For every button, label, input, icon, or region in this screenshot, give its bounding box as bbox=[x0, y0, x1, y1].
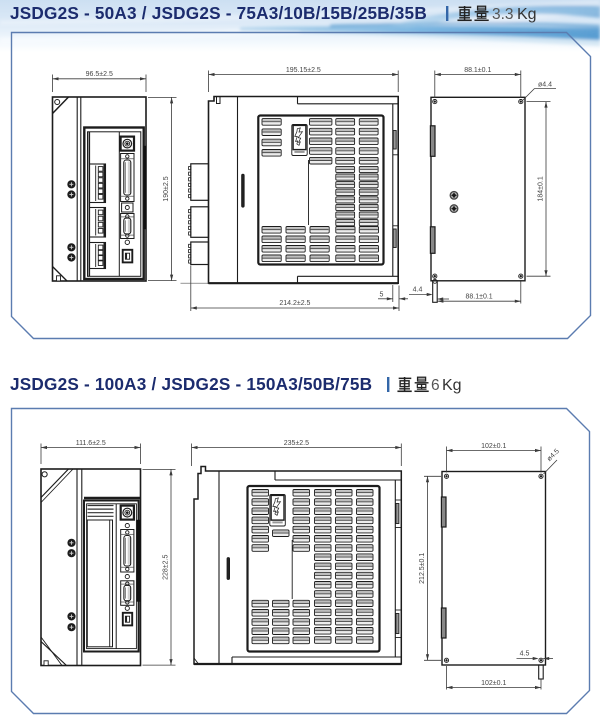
svg-text:235±2.5: 235±2.5 bbox=[284, 440, 309, 447]
svg-text:5: 5 bbox=[380, 292, 384, 299]
svg-text:184±0.1: 184±0.1 bbox=[538, 176, 545, 201]
svg-text:JSDG2S - 50A3 / JSDG2S - 75A3/: JSDG2S - 50A3 / JSDG2S - 75A3/10B/15B/25… bbox=[10, 3, 427, 23]
svg-text:228±2.5: 228±2.5 bbox=[163, 555, 170, 580]
svg-text:102±0.1: 102±0.1 bbox=[481, 443, 506, 450]
svg-text:4.4: 4.4 bbox=[413, 287, 423, 294]
svg-text:JSDG2S - 100A3 / JSDG2S - 150A: JSDG2S - 100A3 / JSDG2S - 150A3/50B/75B bbox=[10, 374, 372, 394]
svg-text:88.1±0.1: 88.1±0.1 bbox=[464, 67, 491, 74]
svg-text:3.3: 3.3 bbox=[492, 6, 514, 23]
svg-text:6: 6 bbox=[431, 377, 440, 394]
svg-text:ø4.4: ø4.4 bbox=[538, 82, 552, 89]
svg-text:212.5±0.1: 212.5±0.1 bbox=[419, 553, 426, 584]
svg-text:190±2.5: 190±2.5 bbox=[163, 176, 170, 201]
svg-text:102±0.1: 102±0.1 bbox=[481, 680, 506, 687]
svg-text:Kg: Kg bbox=[517, 6, 537, 23]
svg-text:88.1±0.1: 88.1±0.1 bbox=[465, 293, 492, 300]
svg-text:96.5±2.5: 96.5±2.5 bbox=[86, 71, 113, 78]
svg-text:4.5: 4.5 bbox=[520, 651, 530, 658]
svg-text:Kg: Kg bbox=[442, 377, 462, 394]
svg-text:214.2±2.5: 214.2±2.5 bbox=[279, 300, 310, 307]
svg-text:111.6±2.5: 111.6±2.5 bbox=[76, 440, 106, 447]
svg-text:195.15±2.5: 195.15±2.5 bbox=[286, 67, 321, 74]
